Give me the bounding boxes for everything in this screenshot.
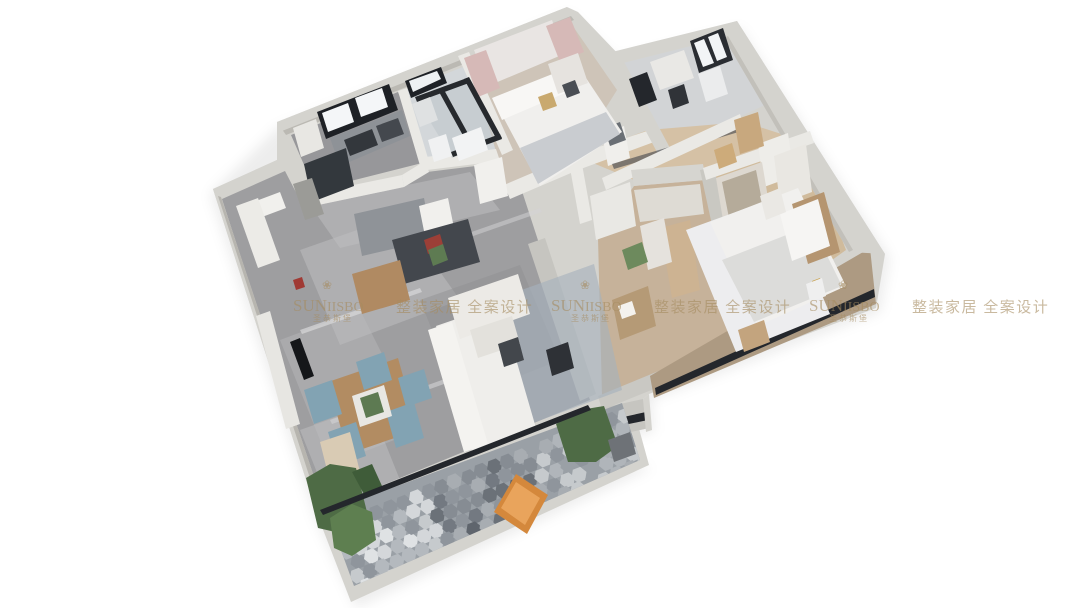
svg-text:圣恭斯堡: 圣恭斯堡 bbox=[571, 313, 611, 323]
svg-text:❀: ❀ bbox=[838, 278, 848, 292]
svg-text:整装家居 全案设计: 整装家居 全案设计 bbox=[912, 298, 1049, 316]
svg-text:❀: ❀ bbox=[580, 278, 590, 292]
svg-text:整装家居 全案设计: 整装家居 全案设计 bbox=[654, 298, 791, 316]
svg-text:圣恭斯堡: 圣恭斯堡 bbox=[829, 313, 869, 323]
svg-text:整装家居 全案设计: 整装家居 全案设计 bbox=[396, 298, 533, 316]
svg-text:❀: ❀ bbox=[322, 278, 332, 292]
svg-text:圣恭斯堡: 圣恭斯堡 bbox=[313, 313, 353, 323]
